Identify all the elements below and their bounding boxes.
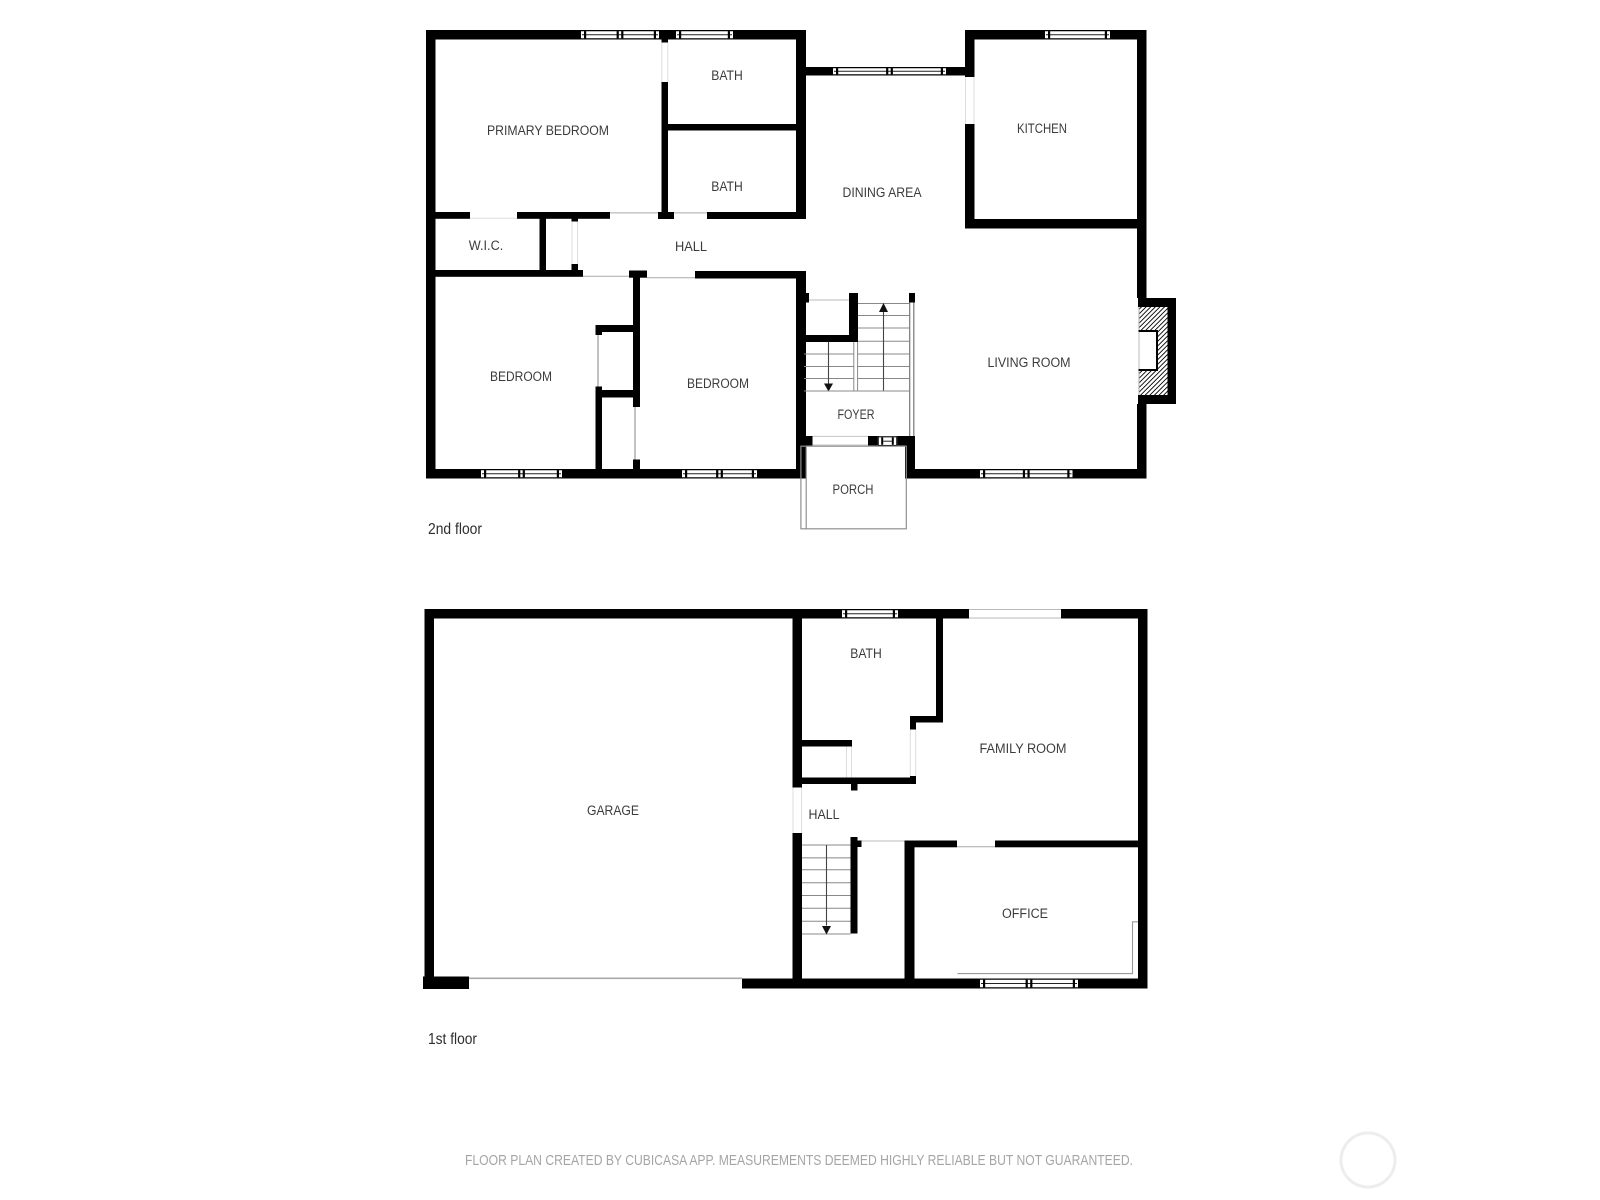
svg-text:GARAGE: GARAGE — [587, 803, 639, 819]
svg-text:KITCHEN: KITCHEN — [1017, 121, 1067, 137]
svg-text:HALL: HALL — [675, 239, 707, 255]
svg-text:HALL: HALL — [809, 807, 840, 823]
svg-text:1st floor: 1st floor — [428, 1031, 477, 1048]
svg-text:FOYER: FOYER — [838, 407, 875, 423]
svg-text:OFFICE: OFFICE — [1002, 906, 1048, 922]
svg-text:LIVING ROOM: LIVING ROOM — [988, 355, 1071, 371]
svg-text:BEDROOM: BEDROOM — [687, 376, 749, 392]
svg-text:BATH: BATH — [711, 68, 743, 84]
svg-text:BATH: BATH — [850, 646, 882, 662]
svg-text:FLOOR PLAN CREATED BY CUBICASA: FLOOR PLAN CREATED BY CUBICASA APP. MEAS… — [465, 1152, 1133, 1169]
svg-text:PORCH: PORCH — [833, 482, 874, 498]
svg-text:W.I.C.: W.I.C. — [469, 238, 504, 254]
svg-text:DINING AREA: DINING AREA — [843, 185, 922, 201]
svg-text:2nd floor: 2nd floor — [428, 521, 482, 538]
svg-text:BATH: BATH — [711, 179, 743, 195]
svg-text:FAMILY ROOM: FAMILY ROOM — [980, 741, 1067, 757]
svg-text:BEDROOM: BEDROOM — [490, 369, 552, 385]
svg-text:PRIMARY BEDROOM: PRIMARY BEDROOM — [487, 123, 609, 139]
